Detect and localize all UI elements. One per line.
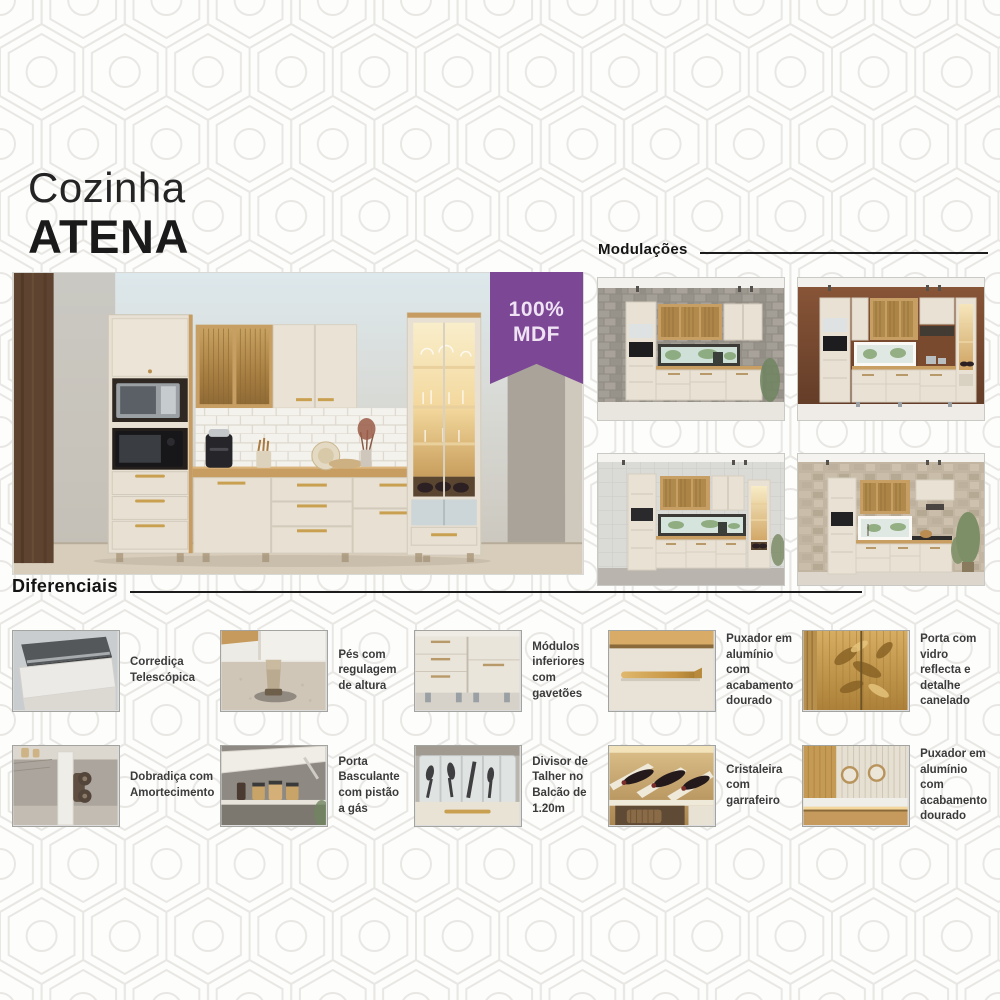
feature-gas-piston-door: Porta Basculante com pistão a gás xyxy=(220,745,408,827)
feature-wine-rack: Cristaleira com garrafeiro xyxy=(608,745,796,827)
modulations-underline xyxy=(700,252,988,254)
modulations-section-heading: Modulações xyxy=(598,241,988,258)
reflecta-glass-fluted-door-photo xyxy=(802,630,910,712)
differentials-title: Diferenciais xyxy=(12,576,118,597)
modulation-photo-1 xyxy=(597,277,785,421)
differentials-section-heading: Diferenciais xyxy=(12,576,862,597)
soft-close-hinge-photo xyxy=(12,745,120,827)
differentials-grid: Corrediça Telescópica Pés com regulagem … xyxy=(12,630,990,827)
gas-piston-flip-door-photo xyxy=(220,745,328,827)
feature-label: Porta com vidro reflecta e detalhe canel… xyxy=(920,632,990,710)
cutlery-divider-tray-photo xyxy=(414,745,522,827)
feature-label: Corrediça Telescópica xyxy=(130,655,214,686)
badge-percent: 100% xyxy=(509,298,565,323)
gold-aluminum-bar-handle-photo xyxy=(608,630,716,712)
feature-label: Módulos inferiores com gavetões xyxy=(532,640,602,702)
modulations-title: Modulações xyxy=(598,241,688,258)
feature-label: Pés com regulagem de altura xyxy=(338,648,408,695)
page-title: Cozinha ATENA xyxy=(28,166,189,261)
feature-adjustable-feet: Pés com regulagem de altura xyxy=(220,630,408,712)
feature-label: Puxador em alumínio com acabamento doura… xyxy=(726,632,796,710)
differentials-underline xyxy=(130,591,862,593)
title-line-cozinha: Cozinha xyxy=(28,166,189,210)
modulation-photo-4 xyxy=(797,453,985,586)
adjustable-feet-photo xyxy=(220,630,328,712)
title-line-atena: ATENA xyxy=(28,212,189,261)
lower-modules-big-drawers-photo xyxy=(414,630,522,712)
gold-aluminum-knob-handle-photo xyxy=(802,745,910,827)
modulation-photo-3 xyxy=(597,453,785,586)
feature-soft-close-hinge: Dobradiça com Amortecimento xyxy=(12,745,214,827)
feature-label: Porta Basculante com pistão a gás xyxy=(338,755,408,817)
feature-gold-knob-handle: Puxador em alumínio com acabamento doura… xyxy=(802,745,990,827)
feature-label: Cristaleira com garrafeiro xyxy=(726,763,796,810)
feature-telescopic-slide: Corrediça Telescópica xyxy=(12,630,214,712)
feature-gold-bar-handle: Puxador em alumínio com acabamento doura… xyxy=(608,630,796,712)
feature-reflecta-glass-door: Porta com vidro reflecta e detalhe canel… xyxy=(802,630,990,712)
feature-label: Puxador em alumínio com acabamento doura… xyxy=(920,747,990,825)
modulation-photo-2 xyxy=(797,277,985,421)
glass-cabinet-wine-rack-photo xyxy=(608,745,716,827)
feature-label: Dobradiça com Amortecimento xyxy=(130,770,214,801)
feature-lower-modules: Módulos inferiores com gavetões xyxy=(414,630,602,712)
feature-cutlery-divider: Divisor de Talher no Balcão de 1.20m xyxy=(414,745,602,827)
badge-mdf: MDF xyxy=(513,323,560,348)
telescopic-slide-photo xyxy=(12,630,120,712)
feature-label: Divisor de Talher no Balcão de 1.20m xyxy=(532,755,602,817)
product-sheet: Cozinha ATENA xyxy=(0,0,1000,1000)
